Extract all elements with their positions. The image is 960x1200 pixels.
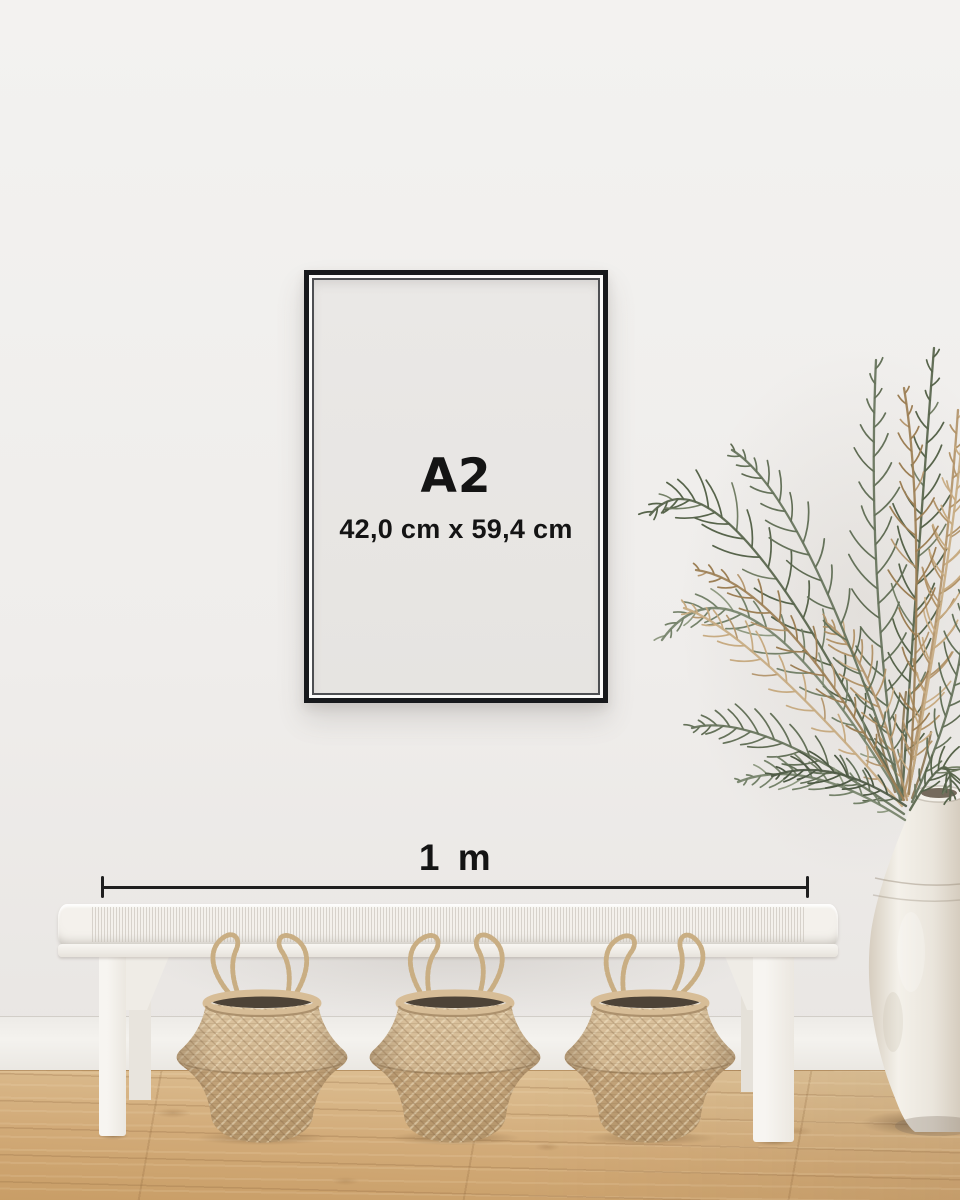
poster-canvas: A2 42,0 cm x 59,4 cm	[312, 278, 600, 695]
frame-size-label: A2	[420, 451, 491, 503]
ceramic-vase	[845, 782, 960, 1138]
bench-rail	[58, 944, 838, 957]
frame-mat: A2 42,0 cm x 59,4 cm	[309, 275, 603, 698]
measurement-label: 1 m	[101, 838, 809, 878]
bench-wall-shadow	[70, 954, 830, 1069]
measurement-tick-left	[101, 876, 104, 898]
basket-shadow	[559, 1128, 741, 1148]
size-guide-scene: A2 42,0 cm x 59,4 cm 1 m	[0, 0, 960, 1200]
poster-frame: A2 42,0 cm x 59,4 cm	[304, 270, 608, 703]
frame-dimensions-label: 42,0 cm x 59,4 cm	[339, 514, 572, 544]
measurement-tick-right	[806, 876, 809, 898]
bench-seat	[58, 904, 838, 948]
basket-shadow	[171, 1128, 353, 1148]
palm-plant	[620, 330, 960, 830]
measurement-line	[101, 886, 809, 889]
bench-leg-front-left	[99, 954, 126, 1136]
width-measurement: 1 m	[101, 830, 809, 900]
basket-shadow	[364, 1128, 546, 1148]
poster-text: A2 42,0 cm x 59,4 cm	[339, 451, 572, 544]
bench-leg-front-right	[753, 954, 794, 1142]
